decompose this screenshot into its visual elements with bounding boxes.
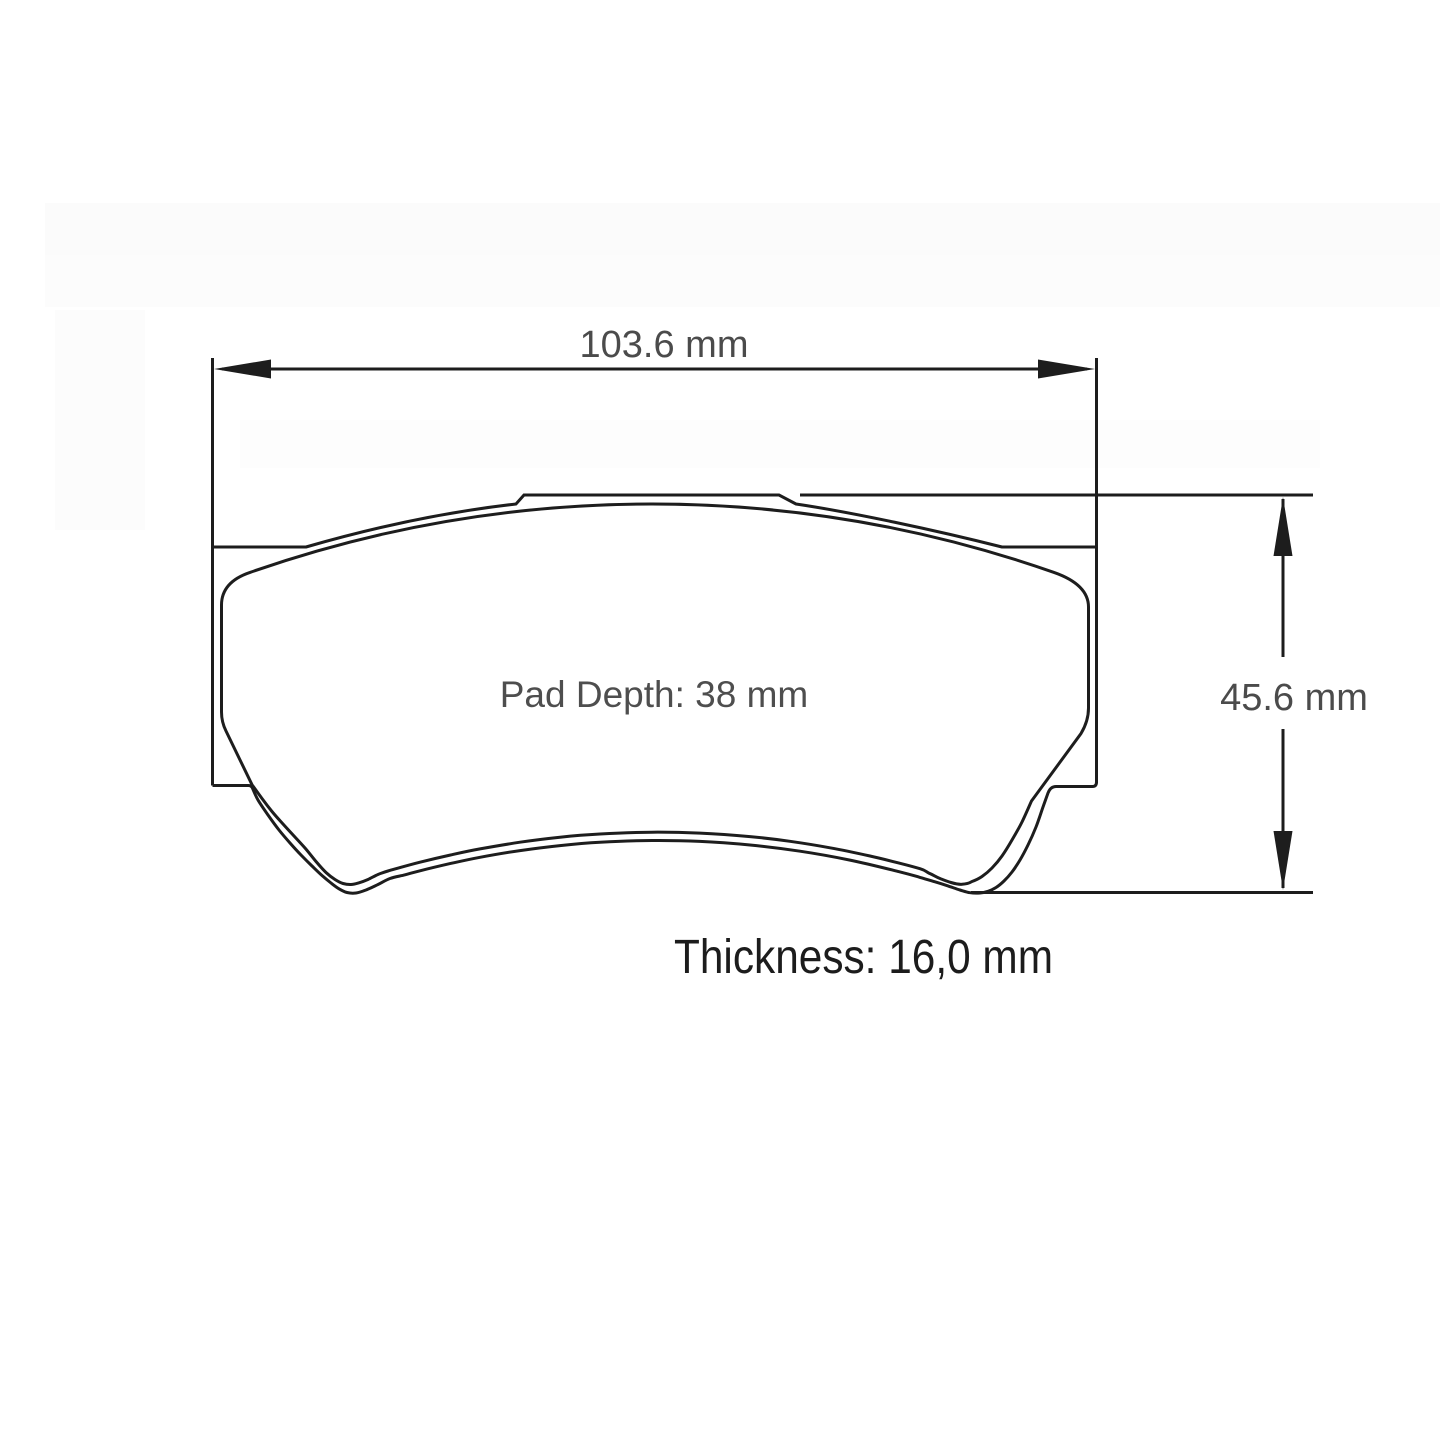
svg-text:Pad Depth: 38 mm: Pad Depth: 38 mm — [500, 674, 808, 715]
svg-text:45.6 mm: 45.6 mm — [1220, 677, 1368, 719]
svg-text:Thickness: 16,0 mm: Thickness: 16,0 mm — [674, 930, 1053, 984]
svg-text:103.6 mm: 103.6 mm — [580, 324, 749, 366]
